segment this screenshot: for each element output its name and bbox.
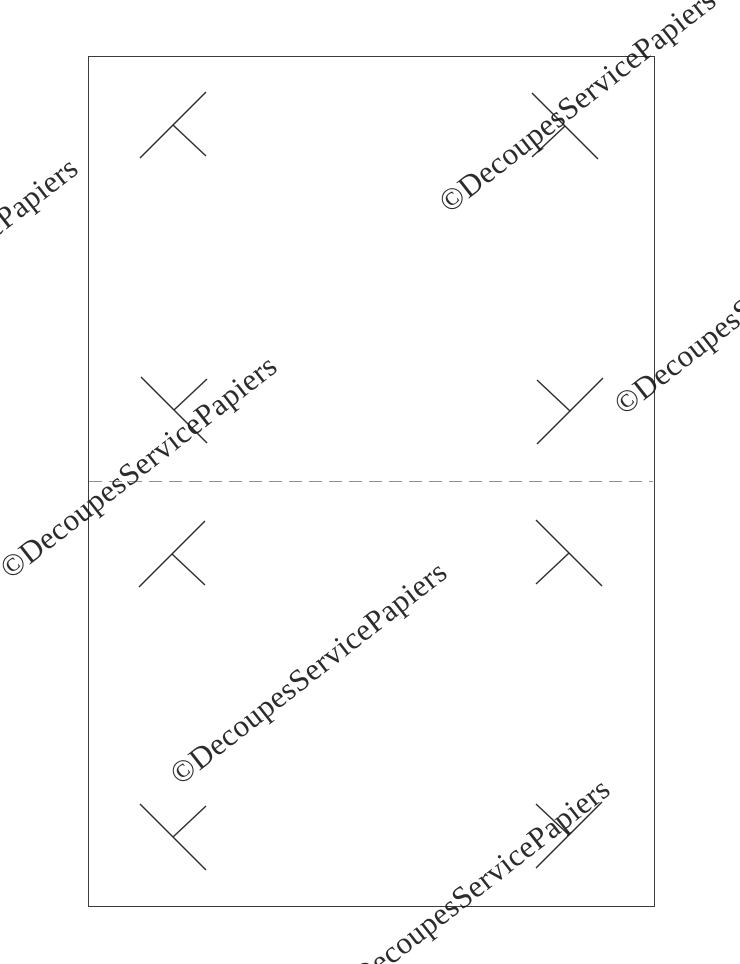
corner-cut-mark-mid-left-lower [137,519,207,589]
copyright-watermark: ©DecoupesServicePapiers [0,940,1,964]
corner-cut-mark-top-right [530,91,600,161]
corner-cut-mark-mid-right-lower [534,518,604,588]
corner-cut-mark-mid-right-upper [535,376,605,446]
corner-cut-mark-top-left [138,90,208,160]
corner-cut-mark-bottom-left [138,802,208,872]
copyright-watermark: ©DecoupesServicePapiers [0,151,84,386]
fold-line [89,481,653,482]
corner-cut-mark-mid-left-upper [139,375,209,445]
template-page: ©DecoupesServicePapiers ©DecoupesService… [0,0,740,964]
corner-cut-mark-bottom-right [534,800,604,870]
